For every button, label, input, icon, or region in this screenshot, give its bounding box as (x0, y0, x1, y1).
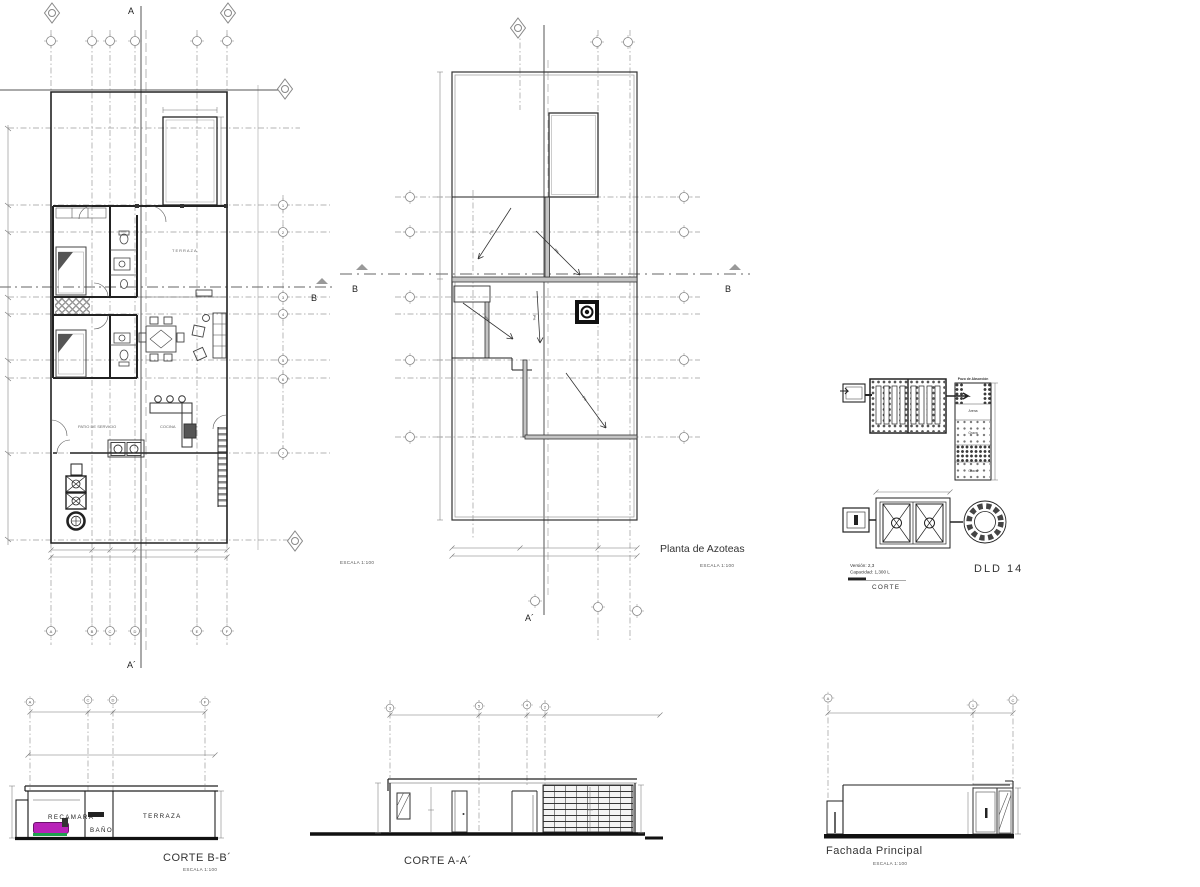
slope-label: P% (532, 315, 536, 321)
roof-a-prime: A´ (525, 613, 534, 623)
kitchen (150, 396, 196, 447)
grid-letter: C (109, 629, 112, 634)
bb-room-bano: BAÑO (90, 827, 113, 834)
room-label-cocina: COCINA (160, 424, 176, 429)
fachada-title: Fachada Principal (826, 845, 923, 857)
roof-drain (575, 300, 599, 324)
laundry (108, 440, 144, 457)
drawing-sheet: A B C D E F 1 2 3 4 5 6 7 A A´ B TERRAZA… (0, 0, 1200, 887)
living-set (192, 290, 226, 361)
septic-detail: Pozo de Absorción Arena Grava Grava (840, 377, 1023, 591)
bb-title: CORTE B-B´ (163, 852, 231, 864)
septic-plan-view (843, 490, 1006, 549)
roof-plan-scale: ESCALA 1:100 (700, 563, 734, 568)
aa-title: CORTE A-A´ (404, 855, 472, 867)
bb-scale: ESCALA 1:100 (183, 867, 217, 872)
section-marker-b: B (311, 293, 317, 303)
label-arena: Arena (968, 409, 977, 413)
bb-bubble: A (29, 700, 32, 705)
bed-1 (56, 208, 106, 295)
section-arrow (316, 278, 328, 284)
fachada-bubble: C (1012, 698, 1015, 703)
detail-capacity: Capacidad: 1,300 L (850, 570, 890, 575)
grid-letter: D (134, 629, 137, 634)
room-label-terraza: TERRAZA (172, 248, 198, 253)
roof-plan: P% P% P% P% P% B B A´ Planta de Azoteas … (340, 18, 750, 640)
bed-2 (56, 330, 86, 377)
grid-letter: A (50, 629, 53, 634)
facade: A 1 C Fachada Principal ESCALA 1:100 (822, 692, 1021, 866)
fachada-bubble: A (827, 696, 830, 701)
bathroom-fixtures (110, 231, 137, 366)
grid-letter: B (91, 629, 94, 634)
roof-b-left: B (352, 284, 358, 294)
section-aa: 3 5 4 2 CORTE A-A´ (310, 699, 663, 867)
label-grava-2: Grava (968, 469, 977, 473)
roof-plan-title: Planta de Azoteas (660, 543, 745, 555)
detail-corte-label: CORTE (872, 584, 900, 591)
grid-letter: E (196, 629, 199, 634)
septic-symbol (66, 464, 86, 530)
linework: A B C D E F 1 2 3 4 5 6 7 A A´ B TERRAZA… (0, 0, 1200, 887)
bb-room-terraza: TERRAZA (143, 813, 182, 820)
fachada-scale: ESCALA 1:100 (873, 861, 907, 866)
label-pozo: Pozo de Absorción (958, 377, 989, 381)
roof-b-right: B (725, 284, 731, 294)
section-marker-a: A (128, 6, 134, 16)
section-bb: A C D F RECAMARA BAÑO TERRAZA CORTE B-B´… (9, 694, 231, 872)
room-label-patio: PATIO DE SERVICIO (78, 424, 116, 429)
bb-bubble: C (87, 698, 90, 703)
floor-plan: A B C D E F 1 2 3 4 5 6 7 A A´ B TERRAZA… (0, 3, 374, 670)
bb-bubble: D (112, 698, 115, 703)
plan1-scale: ESCALA 1:100 (340, 560, 374, 565)
section-marker-a-prime: A´ (127, 660, 136, 670)
detail-code: DLD 14 (974, 563, 1023, 575)
detail-version: Versión: 2,3 (850, 563, 875, 568)
bb-room-recamara: RECAMARA (48, 814, 94, 821)
label-grava-1: Grava (968, 431, 977, 435)
